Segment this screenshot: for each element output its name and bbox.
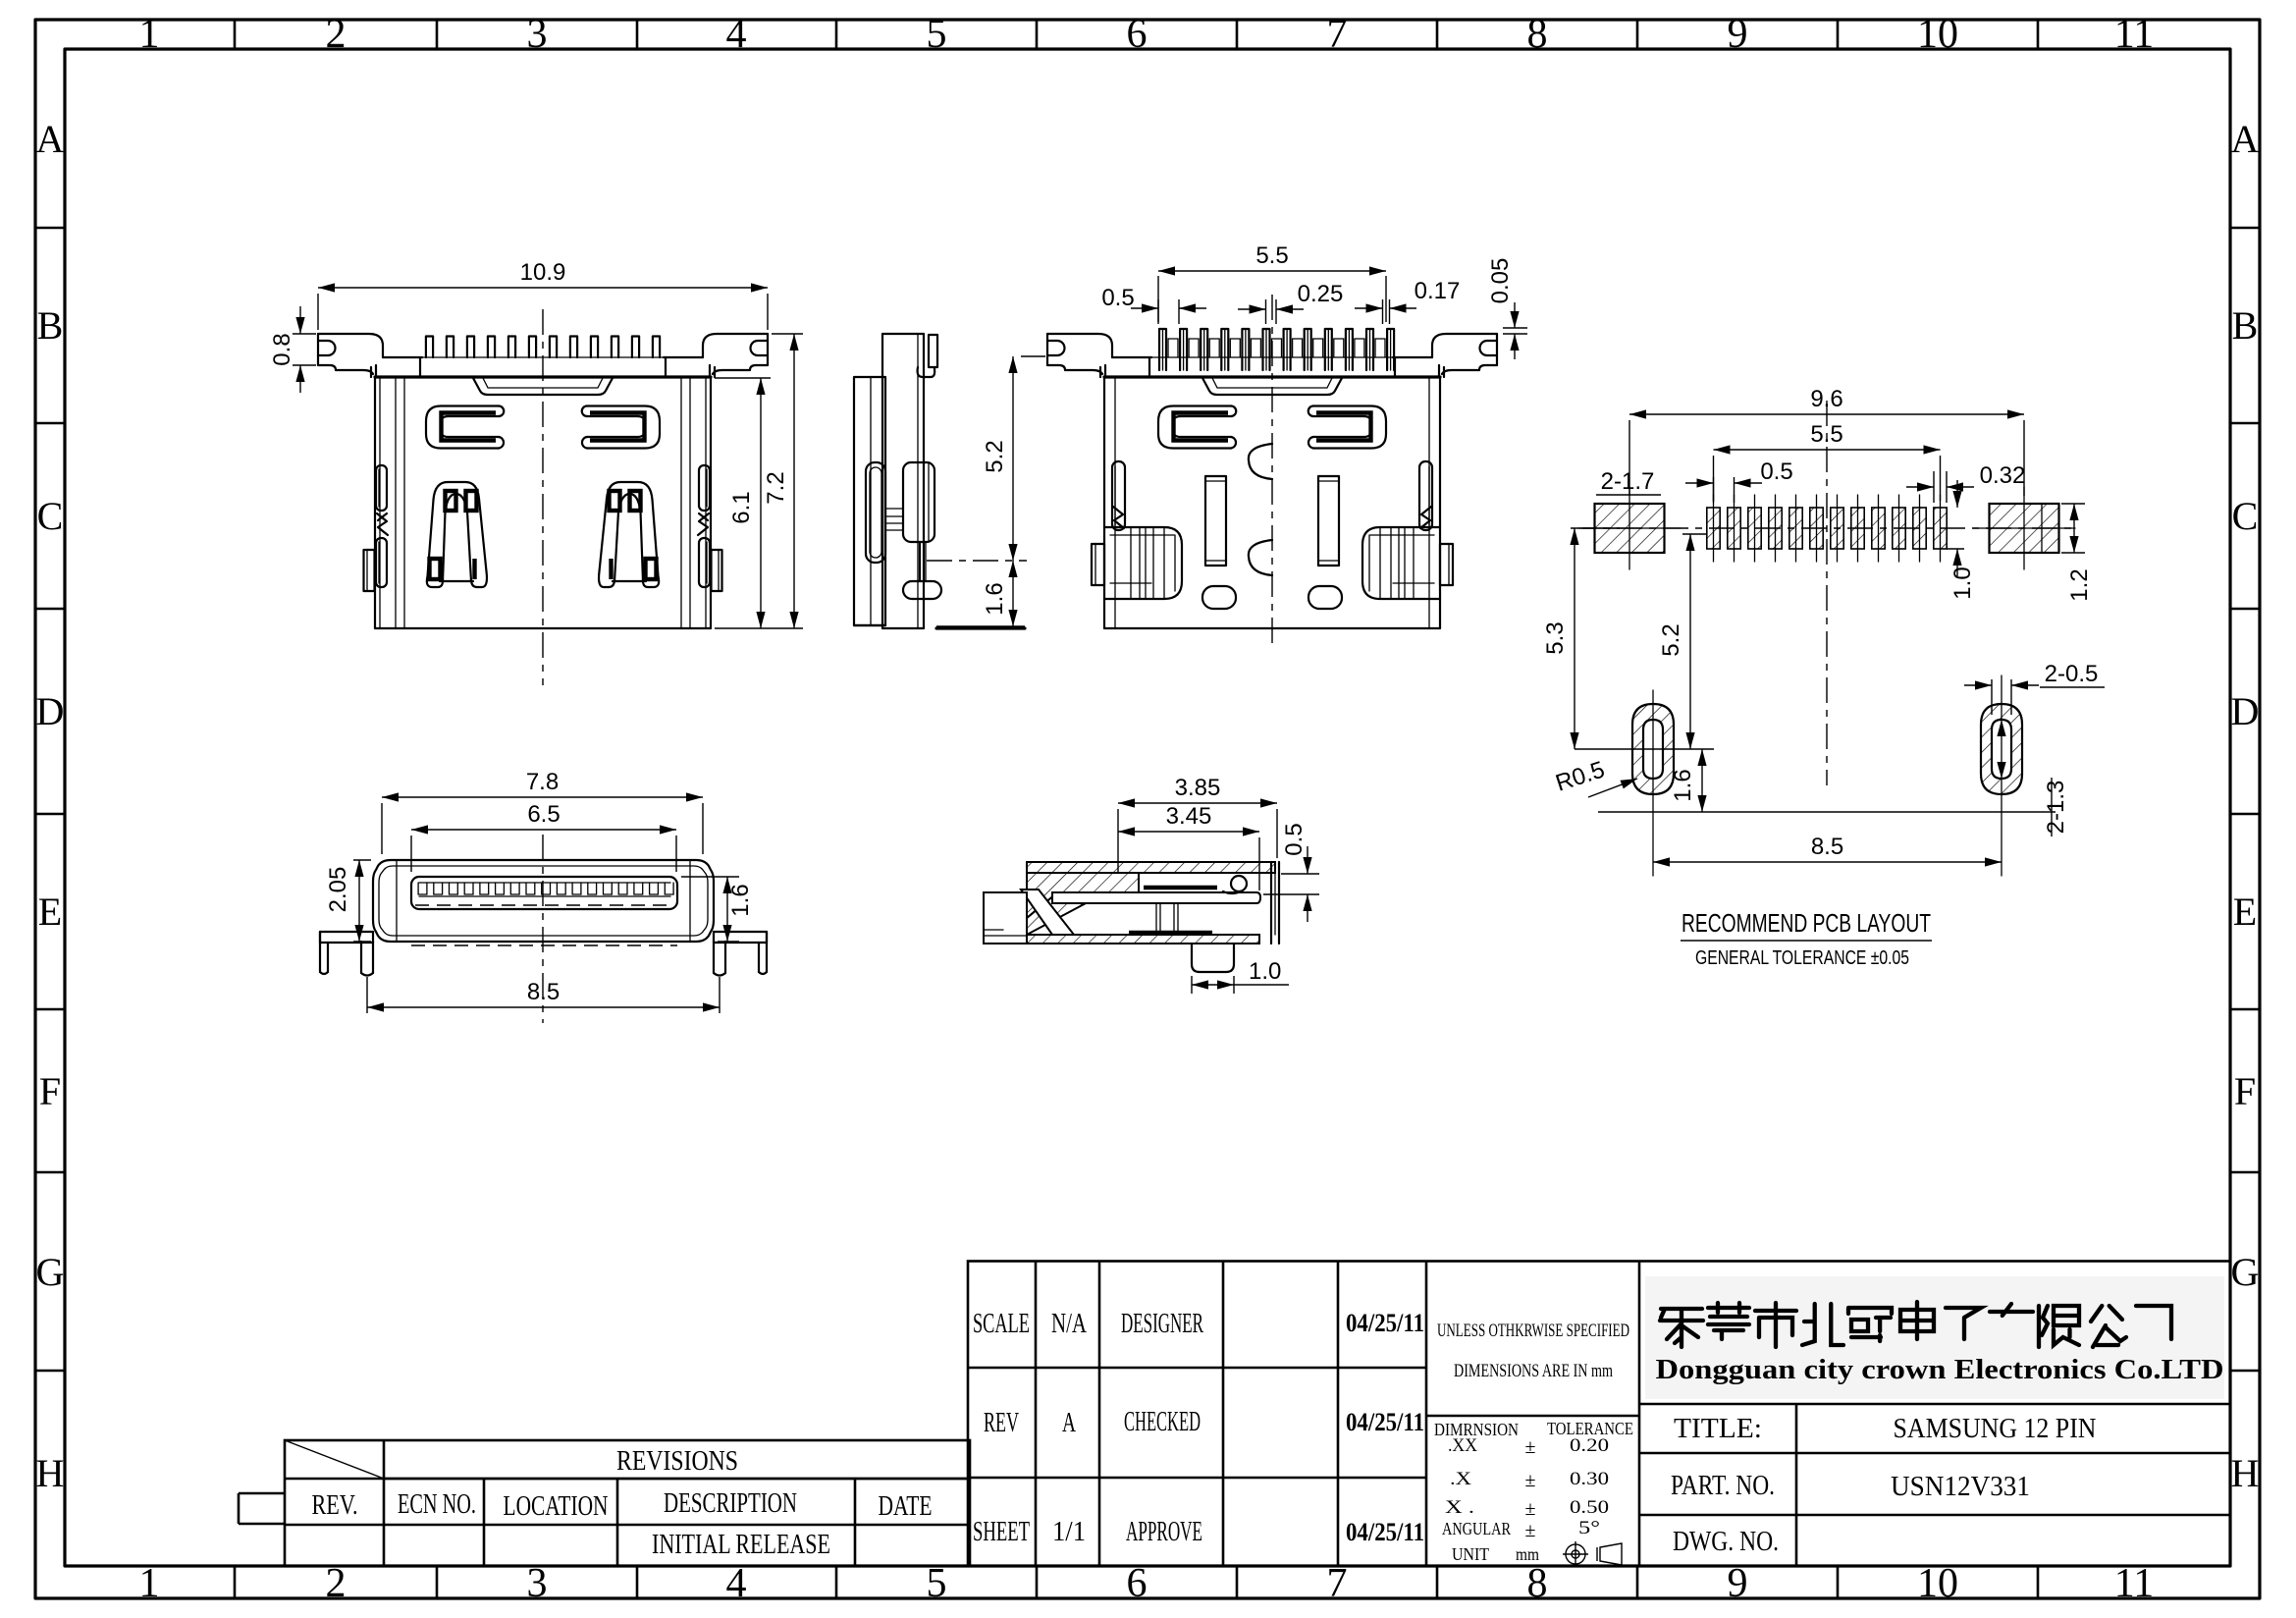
svg-text:0.20: 0.20: [1570, 1435, 1609, 1456]
svg-text:5°: 5°: [1578, 1518, 1600, 1538]
svg-text:6.5: 6.5: [527, 801, 560, 828]
svg-text:5.5: 5.5: [1255, 243, 1288, 269]
svg-text:2-0.5: 2-0.5: [2045, 661, 2099, 687]
svg-text:ANGULAR: ANGULAR: [1442, 1519, 1511, 1538]
svg-text:04/25/11: 04/25/11: [1346, 1309, 1424, 1337]
svg-text:B: B: [37, 303, 64, 348]
svg-text:6: 6: [1127, 12, 1148, 57]
svg-text:F: F: [2234, 1069, 2256, 1113]
svg-text:G: G: [2231, 1250, 2260, 1294]
svg-text:SCALE: SCALE: [973, 1309, 1030, 1339]
svg-text:DATE: DATE: [879, 1491, 933, 1522]
svg-text:04/25/11: 04/25/11: [1346, 1408, 1424, 1436]
svg-text:UNIT: UNIT: [1452, 1544, 1489, 1564]
svg-text:B: B: [2232, 303, 2259, 348]
svg-text:6.1: 6.1: [728, 491, 755, 523]
svg-text:7: 7: [1327, 1561, 1348, 1606]
svg-text:8: 8: [1527, 1561, 1548, 1606]
svg-text:2: 2: [326, 1561, 347, 1606]
svg-text:0.30: 0.30: [1570, 1469, 1609, 1489]
svg-text:7.2: 7.2: [763, 471, 789, 504]
svg-text:A: A: [1062, 1408, 1077, 1438]
svg-text:DESIGNER: DESIGNER: [1121, 1309, 1203, 1339]
svg-text:A: A: [2231, 117, 2260, 161]
svg-text:11: 11: [2114, 12, 2154, 57]
svg-text:±: ±: [1525, 1436, 1536, 1458]
svg-text:ECN NO.: ECN NO.: [398, 1489, 476, 1520]
svg-text:1: 1: [139, 12, 160, 57]
svg-text:LOCATION: LOCATION: [504, 1491, 609, 1522]
svg-text:INITIAL RELEASE: INITIAL RELEASE: [652, 1530, 830, 1560]
svg-text:8: 8: [1527, 12, 1548, 57]
svg-text:RECOMMEND PCB LAYOUT: RECOMMEND PCB LAYOUT: [1682, 908, 1931, 938]
svg-text:2-1.7: 2-1.7: [1601, 468, 1655, 495]
svg-text:4: 4: [726, 1561, 747, 1606]
svg-text:5.5: 5.5: [1810, 421, 1842, 448]
svg-text:D: D: [36, 689, 65, 733]
svg-text:SAMSUNG 12 PIN: SAMSUNG 12 PIN: [1894, 1414, 2097, 1444]
svg-text:Dongguan city crown Electronic: Dongguan city crown Electronics Co.LTD: [1656, 1354, 2224, 1385]
svg-text:10: 10: [1917, 12, 1958, 57]
svg-text:04/25/11: 04/25/11: [1346, 1518, 1424, 1546]
svg-text:G: G: [36, 1250, 65, 1294]
svg-text:.X: .X: [1450, 1469, 1471, 1489]
svg-text:11: 11: [2114, 1561, 2154, 1606]
svg-text:0.50: 0.50: [1570, 1497, 1609, 1518]
svg-text:5: 5: [927, 1561, 947, 1606]
svg-text:1.0: 1.0: [1249, 958, 1281, 985]
svg-text:1.6: 1.6: [982, 582, 1008, 615]
svg-text:3.45: 3.45: [1166, 803, 1212, 830]
svg-text:X .: X .: [1445, 1497, 1474, 1518]
svg-text:GENERAL TOLERANCE ±0.05: GENERAL TOLERANCE ±0.05: [1695, 947, 1909, 969]
svg-text:0.25: 0.25: [1298, 281, 1344, 307]
svg-text:0.17: 0.17: [1415, 278, 1461, 304]
svg-text:1.0: 1.0: [1949, 566, 1976, 599]
svg-text:1: 1: [139, 1561, 160, 1606]
svg-text:0.8: 0.8: [269, 333, 295, 365]
svg-text:10: 10: [1917, 1561, 1958, 1606]
svg-text:±: ±: [1525, 1498, 1536, 1520]
svg-text:DWG. NO.: DWG. NO.: [1673, 1527, 1779, 1557]
svg-text:1/1: 1/1: [1052, 1517, 1086, 1547]
svg-text:DESCRIPTION: DESCRIPTION: [664, 1488, 797, 1519]
svg-text:8.5: 8.5: [527, 979, 560, 1005]
svg-text:TITLE:: TITLE:: [1674, 1414, 1762, 1444]
svg-text:H: H: [36, 1451, 65, 1495]
svg-text:±: ±: [1525, 1470, 1536, 1491]
svg-text:0.32: 0.32: [1980, 462, 2026, 489]
svg-text:5.3: 5.3: [1542, 621, 1569, 654]
svg-text:DIMENSIONS ARE IN mm: DIMENSIONS ARE IN mm: [1454, 1361, 1613, 1381]
svg-text:4: 4: [726, 12, 747, 57]
svg-text:1.6: 1.6: [727, 884, 754, 916]
svg-text:A: A: [36, 117, 65, 161]
svg-text:5.2: 5.2: [982, 440, 1008, 472]
svg-text:H: H: [2231, 1451, 2260, 1495]
svg-text:7: 7: [1327, 12, 1348, 57]
svg-text:C: C: [37, 494, 64, 538]
svg-text:REVISIONS: REVISIONS: [616, 1446, 738, 1477]
svg-text:9: 9: [1728, 1561, 1748, 1606]
svg-text:2: 2: [326, 12, 347, 57]
svg-text:REV.: REV.: [312, 1490, 358, 1521]
svg-text:2-1.3: 2-1.3: [2043, 781, 2069, 835]
svg-text:SHEET: SHEET: [973, 1517, 1030, 1547]
svg-text:USN12V331: USN12V331: [1891, 1472, 2030, 1502]
svg-text:0.5: 0.5: [1101, 285, 1134, 311]
svg-text:5: 5: [927, 12, 947, 57]
svg-text:3: 3: [527, 1561, 548, 1606]
svg-text:E: E: [38, 890, 62, 934]
svg-text:6: 6: [1127, 1561, 1148, 1606]
svg-text:3.85: 3.85: [1175, 775, 1221, 801]
svg-text:1.2: 1.2: [2066, 568, 2093, 601]
svg-text:mm: mm: [1516, 1544, 1539, 1564]
svg-text:3: 3: [527, 12, 548, 57]
svg-text:5.2: 5.2: [1658, 623, 1684, 656]
svg-text:APPROVE: APPROVE: [1126, 1517, 1202, 1547]
svg-text:PART. NO.: PART. NO.: [1671, 1471, 1775, 1501]
svg-text:.XX: .XX: [1448, 1435, 1477, 1456]
svg-text:0.5: 0.5: [1760, 458, 1792, 485]
svg-text:F: F: [39, 1069, 61, 1113]
svg-text:8.5: 8.5: [1811, 834, 1843, 860]
svg-text:10.9: 10.9: [520, 259, 566, 286]
svg-text:9: 9: [1728, 12, 1748, 57]
svg-text:±: ±: [1525, 1520, 1536, 1541]
svg-text:2.05: 2.05: [325, 867, 351, 913]
svg-text:E: E: [2233, 890, 2257, 934]
svg-text:0.05: 0.05: [1487, 258, 1514, 304]
svg-text:UNLESS OTHKRWISE SPECIFIED: UNLESS OTHKRWISE SPECIFIED: [1437, 1321, 1629, 1341]
svg-text:9.6: 9.6: [1810, 386, 1842, 412]
svg-text:D: D: [2231, 689, 2260, 733]
svg-text:CHECKED: CHECKED: [1124, 1407, 1201, 1437]
svg-text:C: C: [2232, 494, 2259, 538]
svg-text:REV: REV: [984, 1408, 1019, 1438]
svg-text:7.8: 7.8: [526, 769, 559, 795]
svg-text:0.5: 0.5: [1281, 823, 1308, 855]
svg-text:N/A: N/A: [1051, 1309, 1088, 1339]
